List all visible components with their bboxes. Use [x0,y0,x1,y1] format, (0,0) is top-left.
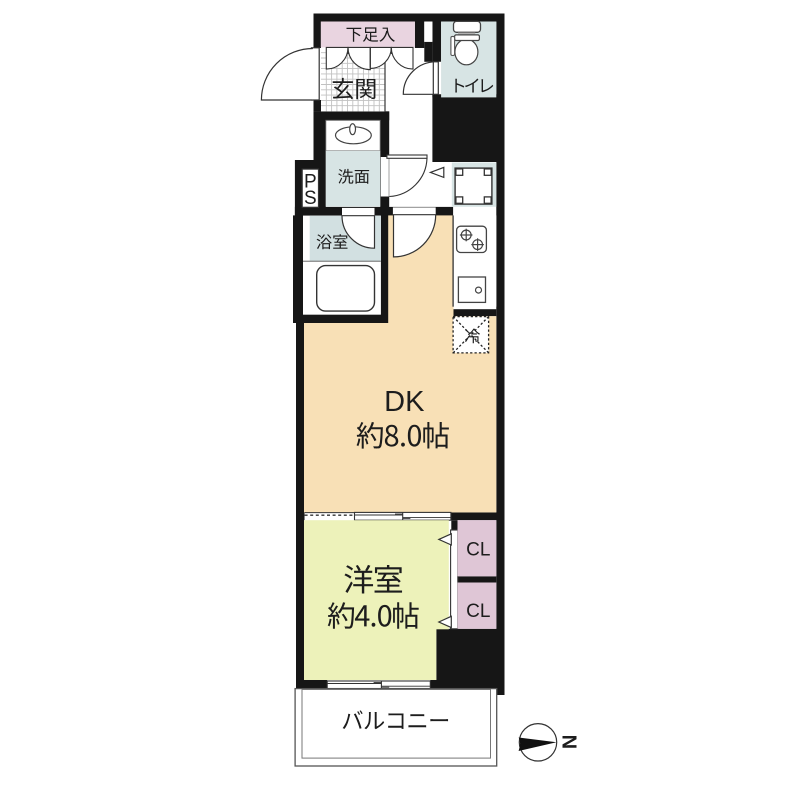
svg-text:S: S [304,188,317,209]
svg-text:CL: CL [466,601,490,622]
svg-text:N: N [558,735,580,749]
svg-text:CL: CL [466,539,490,560]
svg-text:DK: DK [384,386,425,418]
